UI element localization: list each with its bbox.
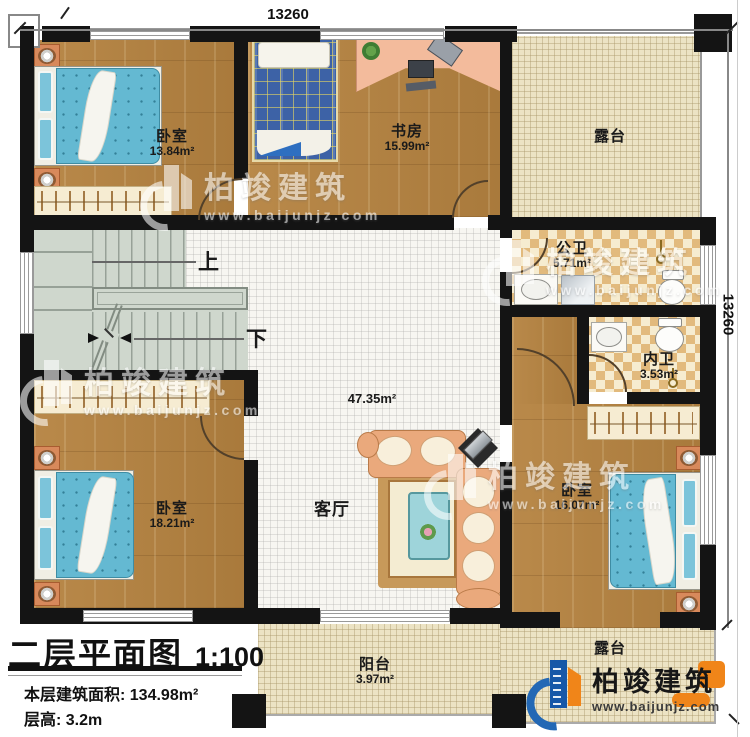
room-label-study: 书房 15.99m² bbox=[367, 123, 447, 154]
wardrobe bbox=[34, 380, 210, 414]
window bbox=[20, 252, 34, 334]
living-area-label: 47.35m² bbox=[332, 392, 412, 407]
pendant-light bbox=[656, 254, 666, 264]
wall bbox=[500, 272, 512, 425]
bed-pillow bbox=[682, 532, 697, 580]
room-area: 47.35m² bbox=[332, 392, 412, 407]
toilet-bowl bbox=[655, 326, 684, 352]
room-name: 阳台 bbox=[335, 656, 415, 673]
room-name: 内卫 bbox=[619, 351, 699, 368]
room-name: 露台 bbox=[570, 128, 650, 145]
bed-pillow bbox=[38, 476, 53, 520]
table-decor bbox=[420, 524, 436, 540]
stair-arrow-left bbox=[88, 333, 99, 343]
room-area: 15.99m² bbox=[367, 140, 447, 154]
wall bbox=[500, 26, 512, 230]
stair-treads-upper bbox=[92, 228, 186, 287]
stair-down-line bbox=[134, 338, 244, 340]
room-name: 卧室 bbox=[537, 482, 617, 499]
dimension-line-top bbox=[20, 29, 733, 31]
brand-logo-icon bbox=[530, 660, 584, 718]
room-name: 客厅 bbox=[292, 500, 372, 520]
room-label-public-bath: 公卫 5.71m² bbox=[532, 240, 612, 271]
room-label-bedroom-c: 卧室 16.07m² bbox=[537, 482, 617, 513]
monitor bbox=[408, 60, 434, 78]
sink bbox=[596, 327, 622, 347]
nightstand bbox=[676, 446, 702, 470]
title-underline bbox=[8, 666, 242, 671]
room-name: 露台 bbox=[570, 640, 650, 657]
wardrobe bbox=[34, 186, 172, 216]
toilet-bowl bbox=[658, 279, 686, 305]
bed-pillow bbox=[38, 71, 53, 113]
nightstand bbox=[34, 446, 60, 470]
floor-height-text: 层高: 3.2m bbox=[24, 706, 102, 730]
wall bbox=[700, 230, 716, 245]
stair-arrow-right bbox=[120, 333, 131, 343]
wall bbox=[577, 392, 589, 404]
room-name: 公卫 bbox=[532, 240, 612, 257]
sofa-armrest bbox=[357, 432, 379, 458]
brand-company: 柏竣建筑 bbox=[592, 660, 720, 699]
balcony-pillar bbox=[492, 694, 526, 728]
floor-plan: 上 下 bbox=[0, 0, 750, 737]
sofa-armrest bbox=[456, 588, 502, 610]
wall bbox=[244, 460, 258, 610]
stair-up-label: 上 bbox=[198, 246, 219, 276]
room-name: 卧室 bbox=[132, 128, 212, 145]
bed-pillow bbox=[38, 526, 53, 570]
stair-line bbox=[34, 251, 92, 253]
room-name: 卧室 bbox=[132, 500, 212, 517]
brand-website: www.baijunjz.com bbox=[592, 699, 720, 714]
brand-logo: 柏竣建筑 www.baijunjz.com bbox=[530, 660, 720, 718]
bed-pillow bbox=[682, 479, 697, 527]
stair-up-line bbox=[92, 261, 196, 263]
window bbox=[700, 245, 716, 305]
wall bbox=[512, 305, 716, 317]
room-label-terrace-bottom: 露台 bbox=[570, 640, 650, 657]
wall bbox=[234, 215, 454, 230]
wall bbox=[20, 370, 258, 380]
room-label-bedroom-a: 卧室 13.84m² bbox=[132, 128, 212, 159]
room-label-ensuite-bath: 内卫 3.53m² bbox=[619, 351, 699, 382]
bed-pillow bbox=[38, 118, 53, 160]
room-area: 13.84m² bbox=[132, 145, 212, 159]
wall bbox=[500, 462, 512, 628]
room-area: 3.53m² bbox=[619, 368, 699, 382]
room-label-terrace-top: 露台 bbox=[570, 128, 650, 145]
room-area: 3.97m² bbox=[335, 673, 415, 687]
single-bed-pillow bbox=[258, 42, 330, 68]
dimension-tick bbox=[60, 7, 70, 20]
dimension-top: 13260 bbox=[258, 6, 318, 23]
wall bbox=[234, 40, 248, 179]
room-label-living: 客厅 bbox=[292, 500, 372, 520]
wall bbox=[700, 305, 716, 455]
floor-area-text: 本层建筑面积: 134.98m² bbox=[24, 681, 198, 705]
wardrobe bbox=[587, 406, 700, 440]
room-area: 18.21m² bbox=[132, 517, 212, 531]
sliding-door bbox=[320, 610, 450, 622]
dimension-right: 13260 bbox=[720, 287, 737, 343]
window bbox=[700, 455, 716, 545]
stair-line bbox=[34, 286, 92, 288]
wall bbox=[577, 317, 589, 392]
plant bbox=[362, 42, 380, 60]
sink bbox=[521, 279, 551, 300]
room-label-bedroom-b: 卧室 18.21m² bbox=[132, 500, 212, 531]
wall bbox=[500, 612, 560, 628]
wall bbox=[512, 217, 716, 230]
room-area: 5.71m² bbox=[532, 257, 612, 271]
terrace-top-parapet bbox=[512, 32, 702, 218]
room-name: 书房 bbox=[367, 123, 447, 140]
stair-landing-rail bbox=[97, 292, 243, 305]
shower bbox=[561, 275, 595, 305]
stair-down-label: 下 bbox=[246, 323, 267, 353]
wall bbox=[500, 217, 512, 238]
window bbox=[83, 610, 193, 622]
sheet-border bbox=[737, 0, 738, 737]
title-underline-thin bbox=[8, 675, 242, 676]
room-area: 16.07m² bbox=[537, 499, 617, 513]
balcony-pillar bbox=[232, 694, 266, 728]
wall bbox=[660, 612, 716, 628]
nightstand bbox=[34, 582, 60, 606]
stair-line bbox=[34, 309, 92, 311]
room-label-balcony: 阳台 3.97m² bbox=[335, 656, 415, 687]
